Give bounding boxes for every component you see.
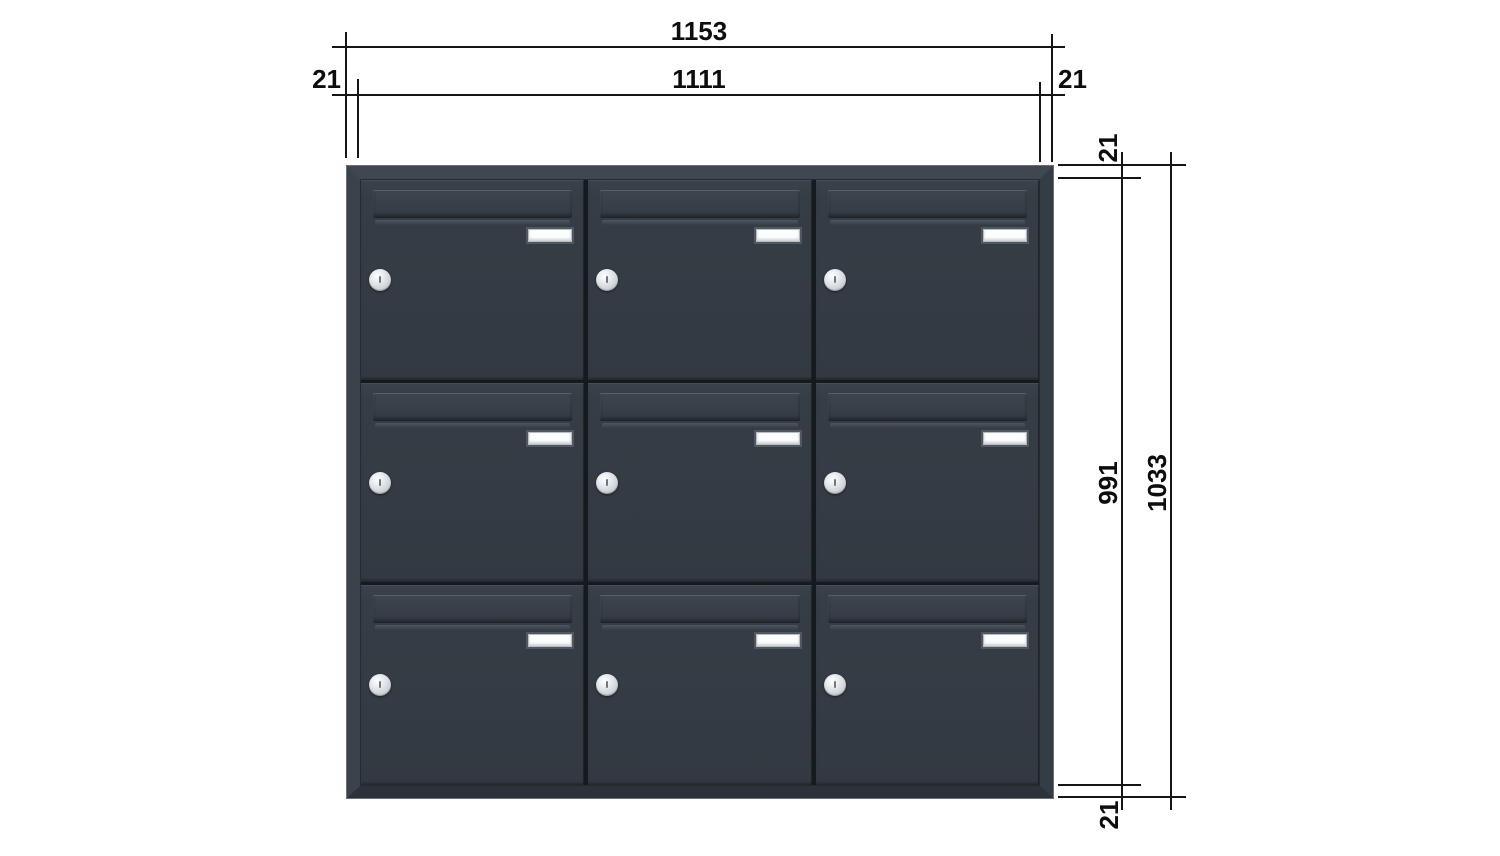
extension-line-left-inner — [357, 79, 359, 158]
cylinder-lock-icon — [369, 674, 391, 696]
mailbox-door — [588, 585, 811, 785]
extension-line-right-outer — [1051, 34, 1053, 162]
name-plate — [756, 634, 800, 647]
dim-label-top-offset: 21 — [1095, 98, 1121, 198]
cylinder-lock-icon — [596, 472, 618, 494]
mailbox-door — [816, 180, 1039, 380]
dim-label-left-offset: 21 — [241, 66, 341, 92]
letter-slot-flap — [373, 393, 572, 420]
dim-label-overall-height: 1033 — [1144, 413, 1170, 553]
mailbox-door — [361, 180, 584, 380]
cylinder-lock-icon — [596, 674, 618, 696]
mailbox-door — [816, 585, 1039, 785]
name-plate — [756, 432, 800, 445]
letter-slot-flap — [373, 190, 572, 217]
technical-drawing-canvas: 1153 1111 21 21 21 991 1033 21 — [0, 0, 1500, 856]
name-plate — [983, 634, 1027, 647]
cylinder-lock-icon — [596, 269, 618, 291]
dimension-line-overall-width — [332, 46, 1065, 48]
letter-slot-flap — [828, 595, 1027, 622]
dim-label-overall-width: 1153 — [599, 18, 799, 44]
dim-label-right-offset: 21 — [1058, 66, 1158, 92]
name-plate — [983, 229, 1027, 242]
cylinder-lock-icon — [369, 472, 391, 494]
dimension-line-inner-width — [332, 94, 1065, 96]
mailbox-cabinet-frame — [347, 166, 1053, 798]
mailbox-door — [816, 383, 1039, 583]
mailbox-door — [588, 383, 811, 583]
mailbox-door — [361, 383, 584, 583]
dim-label-inner-height: 991 — [1095, 413, 1121, 553]
letter-slot-flap — [600, 190, 799, 217]
door-grid — [360, 179, 1040, 786]
letter-slot-flap — [828, 393, 1027, 420]
name-plate — [983, 432, 1027, 445]
name-plate — [528, 432, 572, 445]
name-plate — [528, 634, 572, 647]
letter-slot-flap — [600, 393, 799, 420]
letter-slot-flap — [373, 595, 572, 622]
dim-label-bottom-offset: 21 — [1096, 765, 1122, 856]
cylinder-lock-icon — [824, 269, 846, 291]
letter-slot-flap — [828, 190, 1027, 217]
cylinder-lock-icon — [824, 674, 846, 696]
name-plate — [756, 229, 800, 242]
name-plate — [528, 229, 572, 242]
cylinder-lock-icon — [369, 269, 391, 291]
cylinder-lock-icon — [824, 472, 846, 494]
letter-slot-flap — [600, 595, 799, 622]
mailbox-door — [361, 585, 584, 785]
dim-label-inner-width: 1111 — [599, 66, 799, 92]
mailbox-door — [588, 180, 811, 380]
